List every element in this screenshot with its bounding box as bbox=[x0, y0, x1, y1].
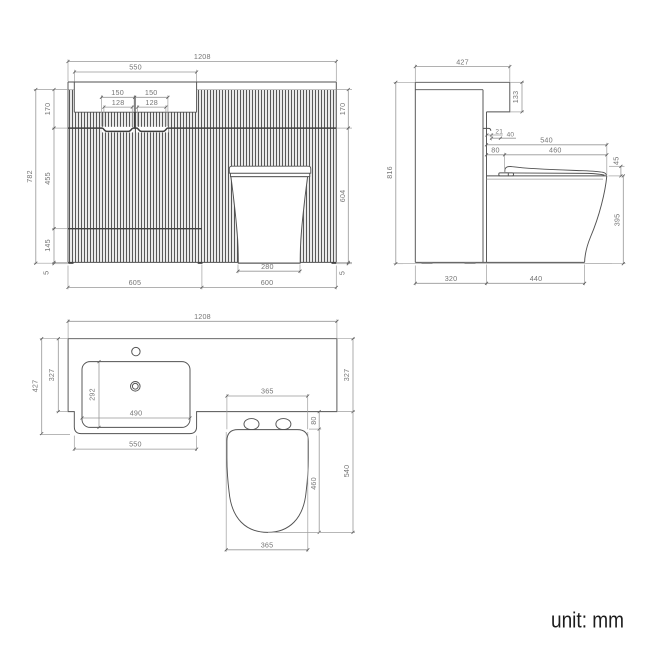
svg-text:490: 490 bbox=[130, 408, 143, 417]
svg-text:460: 460 bbox=[549, 145, 562, 154]
svg-text:604: 604 bbox=[338, 190, 347, 203]
svg-text:427: 427 bbox=[31, 380, 40, 393]
svg-text:605: 605 bbox=[129, 278, 142, 287]
svg-text:550: 550 bbox=[129, 440, 142, 449]
svg-text:540: 540 bbox=[342, 465, 351, 478]
svg-text:460: 460 bbox=[309, 477, 318, 490]
svg-text:365: 365 bbox=[261, 387, 274, 396]
svg-text:45: 45 bbox=[611, 157, 620, 165]
svg-text:782: 782 bbox=[25, 170, 34, 183]
svg-text:292: 292 bbox=[87, 388, 96, 401]
svg-text:unit: mm: unit: mm bbox=[551, 608, 624, 633]
svg-text:320: 320 bbox=[445, 274, 458, 283]
svg-text:455: 455 bbox=[43, 172, 52, 185]
svg-text:550: 550 bbox=[129, 63, 142, 72]
svg-text:816: 816 bbox=[385, 166, 394, 179]
svg-text:540: 540 bbox=[540, 136, 553, 145]
svg-text:440: 440 bbox=[530, 274, 543, 283]
svg-text:128: 128 bbox=[145, 98, 158, 107]
svg-text:40: 40 bbox=[507, 132, 515, 139]
svg-text:395: 395 bbox=[613, 214, 622, 227]
svg-text:170: 170 bbox=[43, 103, 52, 116]
svg-text:150: 150 bbox=[111, 88, 124, 97]
svg-text:327: 327 bbox=[342, 369, 351, 382]
svg-text:327: 327 bbox=[47, 369, 56, 382]
svg-text:150: 150 bbox=[145, 88, 158, 97]
svg-text:280: 280 bbox=[261, 262, 274, 271]
svg-text:145: 145 bbox=[43, 239, 52, 252]
svg-text:600: 600 bbox=[261, 278, 274, 287]
svg-text:5: 5 bbox=[42, 271, 51, 275]
svg-text:80: 80 bbox=[491, 145, 499, 154]
svg-text:80: 80 bbox=[309, 416, 318, 424]
svg-text:5: 5 bbox=[337, 271, 346, 275]
svg-text:1208: 1208 bbox=[194, 52, 211, 61]
svg-text:170: 170 bbox=[338, 103, 347, 116]
svg-text:1208: 1208 bbox=[194, 312, 211, 321]
svg-text:365: 365 bbox=[261, 540, 274, 549]
svg-text:427: 427 bbox=[456, 57, 469, 66]
svg-text:133: 133 bbox=[511, 91, 520, 104]
svg-text:21: 21 bbox=[495, 128, 503, 135]
svg-text:128: 128 bbox=[112, 98, 125, 107]
